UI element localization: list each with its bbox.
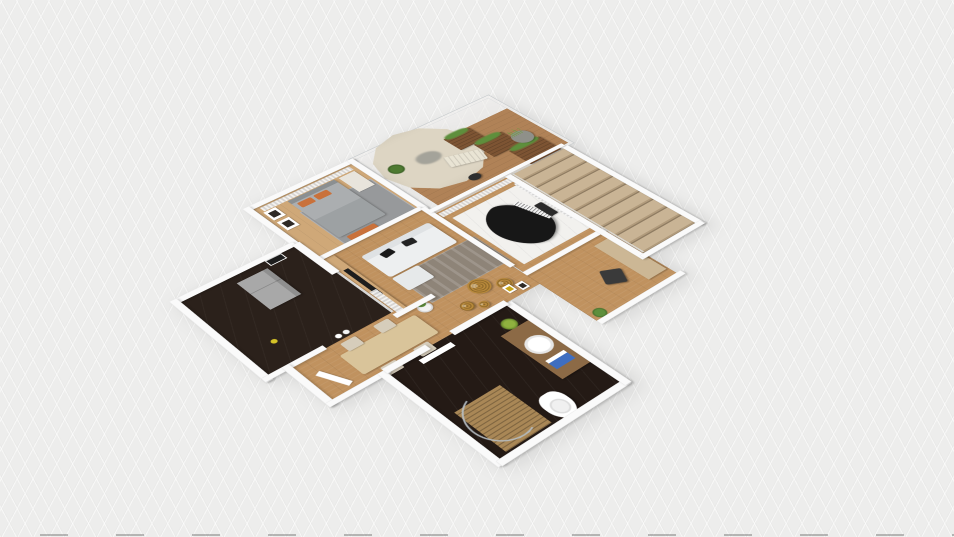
art-canvas bbox=[505, 286, 514, 291]
art-canvas bbox=[518, 283, 527, 288]
parasol-pole-hub bbox=[412, 148, 447, 166]
art-canvas bbox=[282, 220, 295, 228]
canvas-bottom-gridmarks bbox=[40, 534, 954, 536]
art-canvas bbox=[268, 210, 281, 218]
bathroom-towel-blue[interactable] bbox=[545, 350, 575, 369]
